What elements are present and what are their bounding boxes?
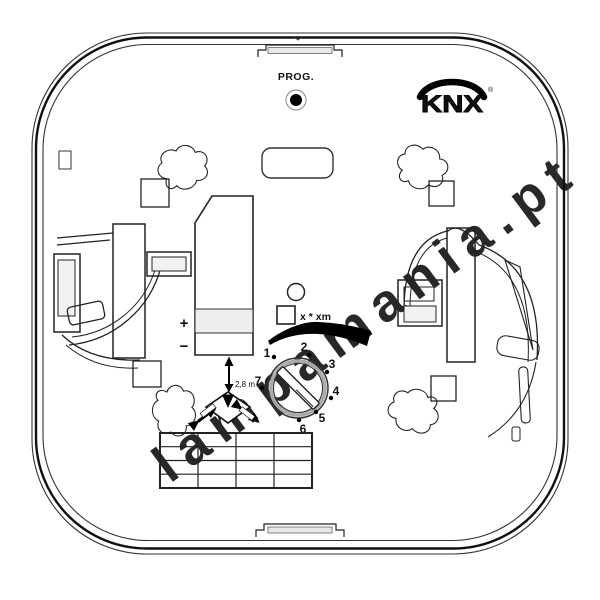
plus-label: + <box>180 315 189 332</box>
minus-label: − <box>180 338 189 355</box>
dial-number: 5 <box>319 411 326 425</box>
side-notch <box>59 151 71 169</box>
parameter-row: x * xm <box>277 306 331 324</box>
dial-number: 2 <box>301 340 308 354</box>
registered-mark: ® <box>488 86 494 94</box>
dial-number: 4 <box>333 384 340 398</box>
dial-number: 1 <box>264 346 271 360</box>
knx-logo: KNX ® <box>420 82 494 118</box>
label-plate <box>262 148 333 178</box>
prog-button-dot <box>290 94 302 106</box>
detector-line-drawing: lampamania.pt <box>0 0 600 600</box>
prog-button: PROG. <box>278 71 314 110</box>
param-checkbox <box>277 306 295 324</box>
height-label: 2,8 m <box>235 380 255 389</box>
dial-number: 3 <box>329 357 336 371</box>
prog-label: PROG. <box>278 71 314 83</box>
product-image: lampamania.pt <box>0 0 600 600</box>
bottom-clip <box>256 524 344 537</box>
knx-logo-text: KNX <box>421 91 483 118</box>
led-indicator <box>288 284 305 301</box>
top-clip <box>258 45 342 57</box>
dial-number: 7 <box>255 374 262 388</box>
param-label: x * xm <box>300 311 331 323</box>
clamp-left <box>54 224 191 368</box>
